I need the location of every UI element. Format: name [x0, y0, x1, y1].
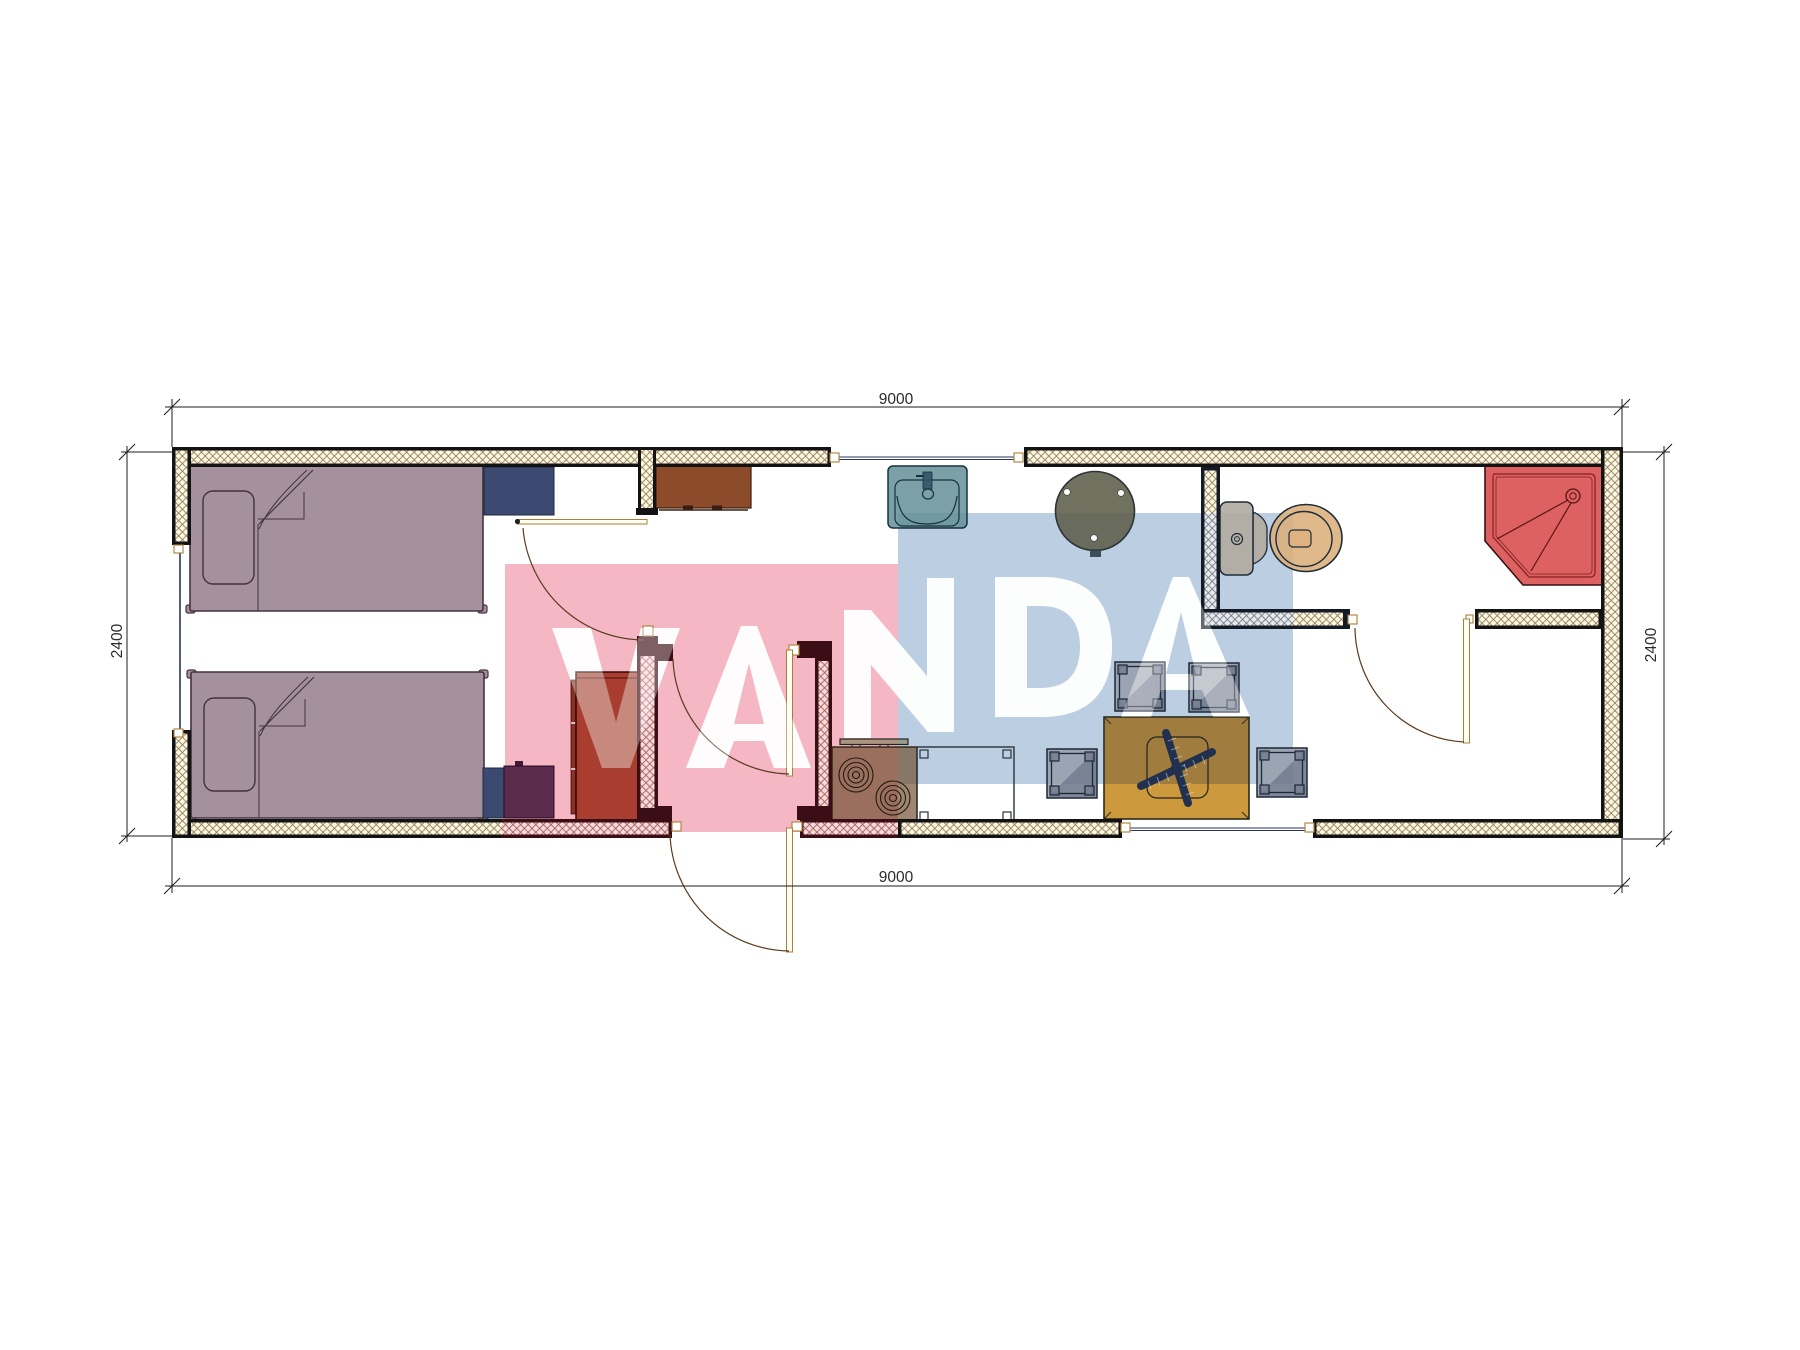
svg-text:9000: 9000 — [879, 391, 914, 408]
svg-text:2400: 2400 — [1643, 627, 1660, 662]
svg-text:2400: 2400 — [109, 623, 126, 658]
svg-text:9000: 9000 — [879, 869, 914, 886]
